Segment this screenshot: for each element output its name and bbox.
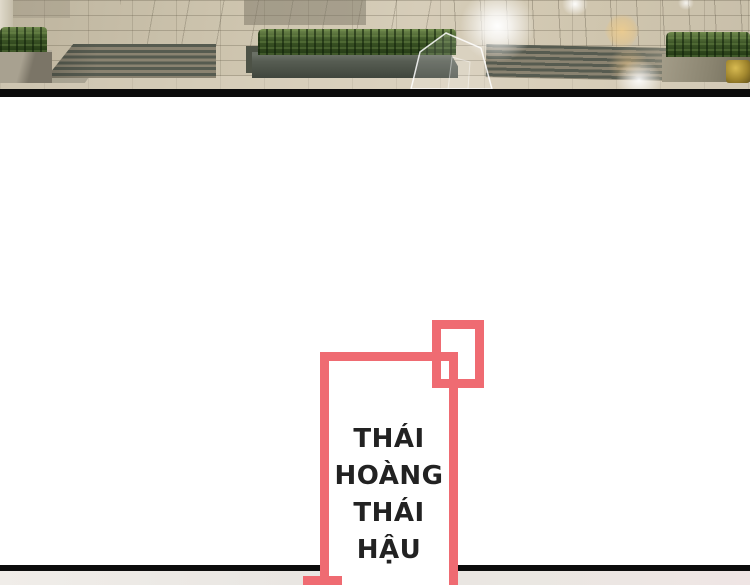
plaza-scene-panel (0, 0, 750, 97)
speech-text: THÁI HOÀNG THÁI HẬU (329, 361, 449, 569)
comic-page: THÁI HOÀNG THÁI HẬU (0, 0, 750, 585)
bubble-bottom-ornament (303, 576, 342, 585)
bubble-line-3: THÁI (353, 495, 424, 532)
bubble-line-1: THÁI (353, 421, 424, 458)
bubble-line-4: HẬU (357, 532, 422, 569)
light-flare-low-icon (616, 60, 662, 97)
bubble-corner-ornament (432, 320, 484, 388)
bubble-line-2: HOÀNG (335, 458, 444, 495)
